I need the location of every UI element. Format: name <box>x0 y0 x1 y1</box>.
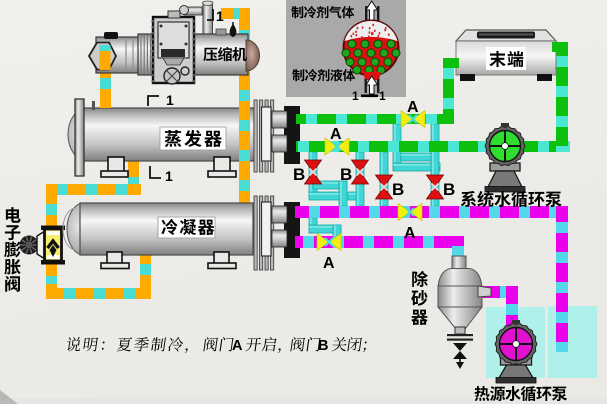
svg-text:1: 1 <box>379 89 386 103</box>
svg-text:B: B <box>293 165 305 184</box>
svg-text:1: 1 <box>352 89 359 103</box>
svg-text:B: B <box>392 180 404 199</box>
svg-text:B: B <box>443 180 455 199</box>
svg-text:1: 1 <box>166 92 174 108</box>
svg-text:A: A <box>407 99 419 116</box>
svg-text:B: B <box>318 338 328 354</box>
svg-text:A: A <box>404 225 416 242</box>
svg-text:A: A <box>323 255 335 272</box>
svg-text:1: 1 <box>165 168 173 184</box>
svg-text:A: A <box>330 126 342 143</box>
svg-text:1: 1 <box>216 8 224 24</box>
svg-text:B: B <box>340 165 352 184</box>
svg-text:A: A <box>232 338 243 354</box>
